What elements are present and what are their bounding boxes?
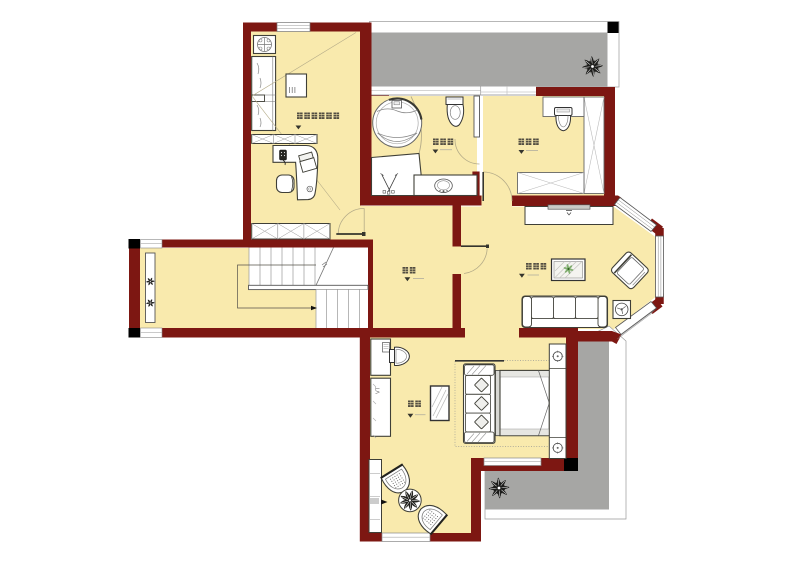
svg-text:VT: VT — [376, 386, 382, 394]
